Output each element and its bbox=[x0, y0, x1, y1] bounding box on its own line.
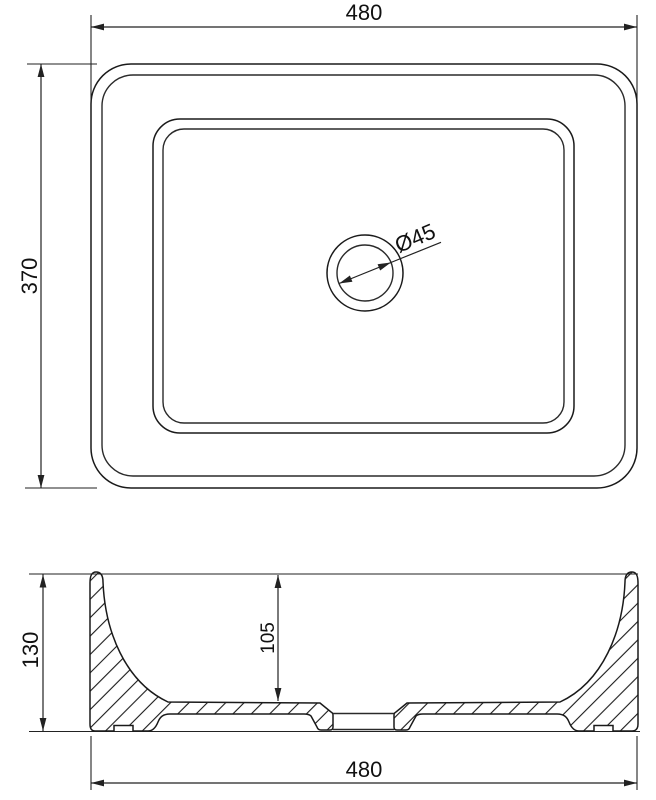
dim-drain-diameter: Ø45 bbox=[339, 218, 441, 283]
dim-height-left: 370 bbox=[17, 64, 97, 488]
technical-drawing-page: Ø45 480 370 bbox=[0, 0, 656, 800]
dim-width-bottom: 480 bbox=[91, 736, 637, 790]
dim-label-section-height: 130 bbox=[18, 632, 43, 669]
dim-width-top: 480 bbox=[91, 0, 637, 110]
washbasin-technical-drawing: Ø45 480 370 bbox=[0, 0, 656, 800]
top-view: Ø45 480 370 bbox=[17, 0, 637, 488]
dim-label-width-top: 480 bbox=[346, 0, 383, 25]
dim-label-width-bottom: 480 bbox=[346, 757, 383, 782]
drain-dim-label: Ø45 bbox=[391, 218, 439, 257]
dim-height-section: 130 bbox=[18, 575, 43, 732]
bowl-outer-edge bbox=[153, 119, 574, 433]
section-shell-right bbox=[394, 572, 638, 731]
section-view: 130 105 480 bbox=[18, 572, 640, 790]
dim-label-inner-depth: 105 bbox=[258, 622, 279, 654]
basin-outer-edge bbox=[91, 64, 637, 488]
dim-label-height: 370 bbox=[17, 258, 42, 295]
section-shell-left bbox=[90, 572, 333, 731]
drain-dim-line bbox=[339, 263, 391, 284]
dim-inner-depth: 105 bbox=[258, 575, 279, 701]
basin-rim-inner-edge bbox=[102, 75, 625, 476]
bowl-inner-edge bbox=[163, 129, 564, 423]
